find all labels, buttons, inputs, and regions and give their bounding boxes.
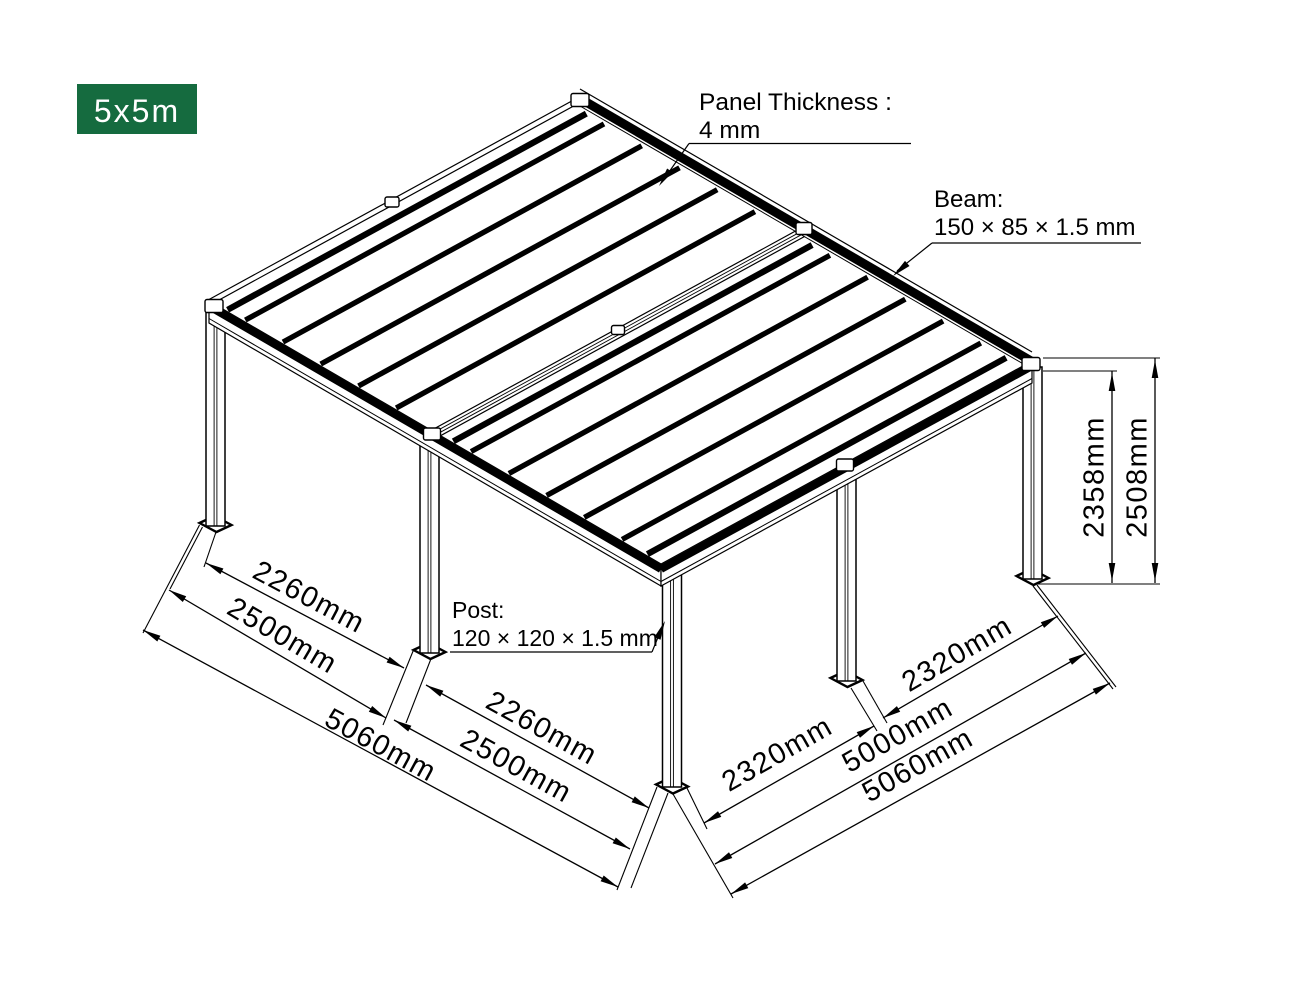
svg-text:Panel Thickness :: Panel Thickness : bbox=[699, 89, 892, 116]
svg-text:2358mm: 2358mm bbox=[1079, 416, 1111, 538]
svg-text:2508mm: 2508mm bbox=[1122, 416, 1154, 538]
svg-text:4 mm: 4 mm bbox=[699, 117, 760, 144]
svg-text:Post:: Post: bbox=[452, 597, 504, 623]
svg-text:150 × 85 × 1.5 mm: 150 × 85 × 1.5 mm bbox=[934, 214, 1135, 241]
svg-text:120 × 120 × 1.5 mm: 120 × 120 × 1.5 mm bbox=[452, 625, 658, 651]
svg-text:Beam:: Beam: bbox=[934, 186, 1003, 213]
svg-text:5x5m: 5x5m bbox=[94, 93, 180, 129]
